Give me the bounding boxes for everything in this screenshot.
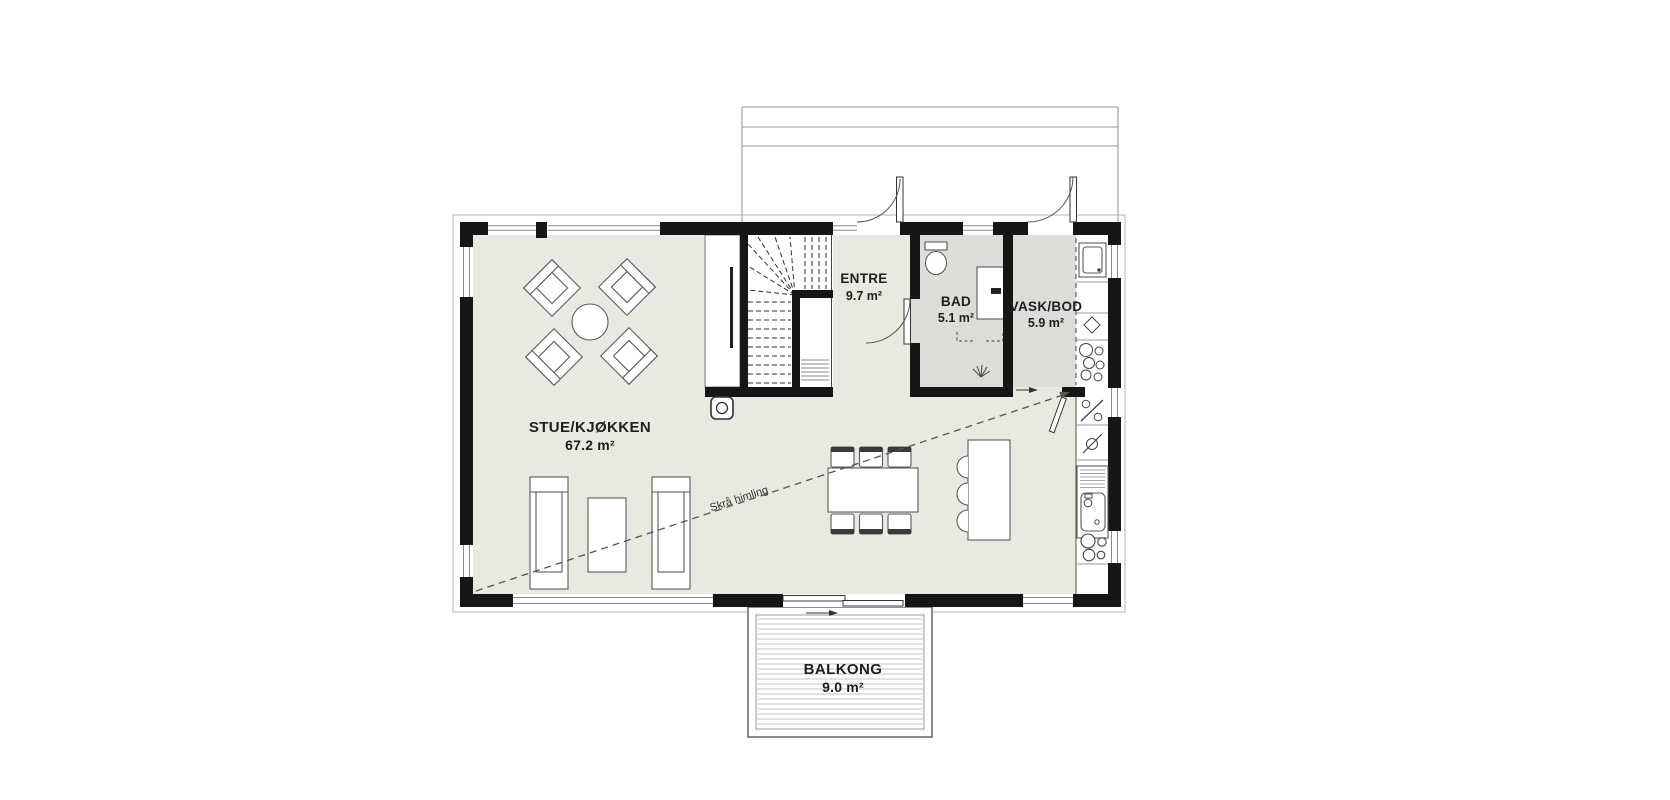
room-area-entre: 9.7 m² xyxy=(846,289,882,303)
window xyxy=(513,594,713,607)
dining-set xyxy=(828,447,918,534)
washing-machine xyxy=(1079,243,1106,277)
window xyxy=(1108,531,1121,563)
dining-chair xyxy=(831,447,854,467)
kitchen-sink xyxy=(1077,466,1108,538)
window xyxy=(963,222,993,235)
side-table xyxy=(588,498,626,572)
floor-stair xyxy=(740,235,833,397)
room-label-stue-kjokken: STUE/KJØKKEN xyxy=(529,419,651,436)
room-label-entre: ENTRE xyxy=(840,271,887,286)
lounger xyxy=(652,477,690,589)
window xyxy=(833,222,857,235)
vask-bod-exterior-door xyxy=(1028,177,1077,235)
room-label-balkong: BALKONG xyxy=(804,661,883,678)
dining-chair xyxy=(831,514,854,534)
floor-plan-page: STUE/KJØKKEN 67.2 m² ENTRE 9.7 m² BAD 5.… xyxy=(0,0,1670,800)
window xyxy=(548,222,660,235)
room-area-balkong: 9.0 m² xyxy=(822,679,864,695)
dining-chair xyxy=(888,514,911,534)
floor-plan-drawing: STUE/KJØKKEN 67.2 m² ENTRE 9.7 m² BAD 5.… xyxy=(0,0,1670,800)
room-area-stue-kjokken: 67.2 m² xyxy=(565,437,615,453)
lounger xyxy=(530,477,568,589)
room-label-bad: BAD xyxy=(941,294,971,309)
room-area-vask-bod: 5.9 m² xyxy=(1028,316,1064,330)
window xyxy=(1108,388,1121,417)
entry-door xyxy=(857,177,903,235)
window xyxy=(460,545,473,577)
coffee-table xyxy=(572,304,608,340)
window xyxy=(488,222,536,235)
window xyxy=(460,247,473,297)
room-label-vask-bod: VASK/BOD xyxy=(1010,299,1083,314)
room-area-bad: 5.1 m² xyxy=(938,311,974,325)
entry-deck xyxy=(742,107,1118,222)
closet-door-line xyxy=(730,267,733,348)
dining-table xyxy=(828,468,918,512)
window xyxy=(1108,245,1121,278)
outlet-symbol xyxy=(711,397,733,419)
hall-closet xyxy=(705,235,740,387)
window xyxy=(1023,594,1073,607)
dining-chair xyxy=(860,514,883,534)
toilet xyxy=(925,242,947,275)
